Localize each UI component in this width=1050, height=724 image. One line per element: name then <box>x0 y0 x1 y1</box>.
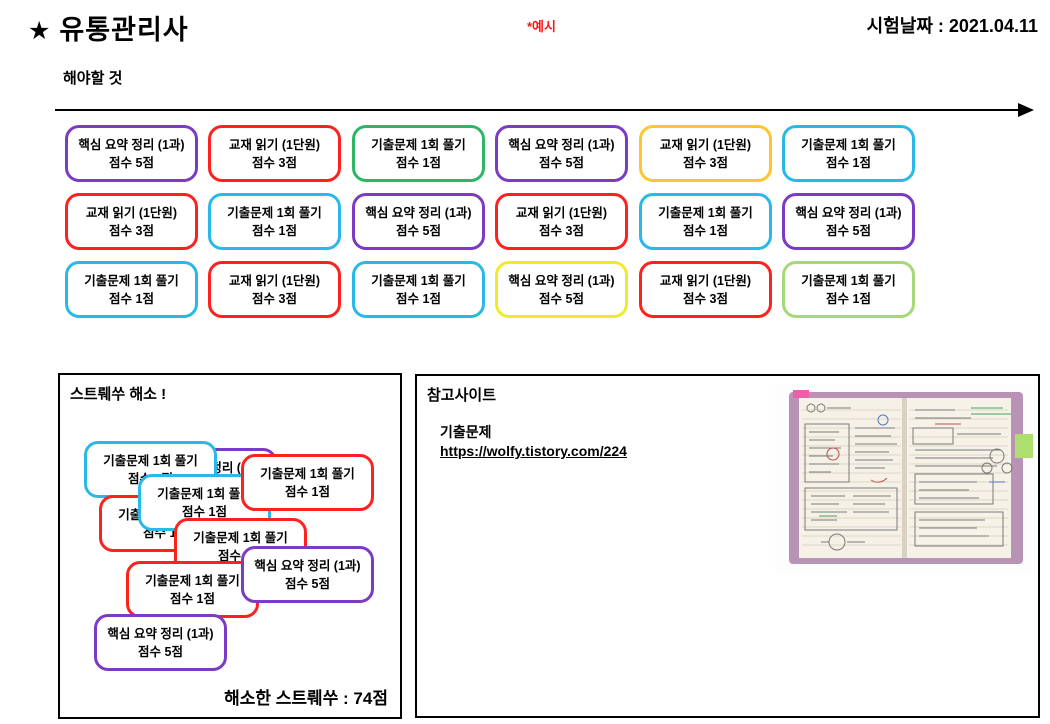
todo-card[interactable]: 기출문제 1회 풀기점수 1점 <box>208 193 341 250</box>
todo-card[interactable]: 핵심 요약 정리 (1과)점수 5점 <box>495 261 628 318</box>
todo-section-label: 해야할 것 <box>63 67 122 88</box>
todo-card[interactable]: 기출문제 1회 풀기점수 1점 <box>782 261 915 318</box>
todo-card-score: 점수 3점 <box>683 154 728 172</box>
todo-card[interactable]: 기출문제 1회 풀기점수 1점 <box>352 261 485 318</box>
page-title-text: 유통관리사 <box>59 15 188 45</box>
todo-card[interactable]: 핵심 요약 정리 (1과)점수 5점 <box>352 193 485 250</box>
todo-card-title: 기출문제 1회 풀기 <box>371 136 465 154</box>
todo-card-score: 점수 1점 <box>396 154 441 172</box>
todo-card-title: 교재 읽기 (1단원) <box>516 204 607 222</box>
timeline-arrow-head <box>1018 103 1034 117</box>
todo-card-title: 핵심 요약 정리 (1과) <box>78 136 184 154</box>
todo-card-score: 점수 1점 <box>826 154 871 172</box>
todo-card-score: 점수 3점 <box>539 222 584 240</box>
todo-card-title: 기출문제 1회 풀기 <box>84 272 178 290</box>
page-title: ★유통관리사 <box>28 8 189 47</box>
exam-date: 시험날짜 : 2021.04.11 <box>867 12 1038 38</box>
stress-card-score: 점수 1점 <box>170 590 215 608</box>
todo-card[interactable]: 기출문제 1회 풀기점수 1점 <box>639 193 772 250</box>
todo-card-score: 점수 3점 <box>252 290 297 308</box>
todo-card[interactable]: 핵심 요약 정리 (1과)점수 5점 <box>782 193 915 250</box>
todo-card-title: 기출문제 1회 풀기 <box>801 272 895 290</box>
todo-card-title: 기출문제 1회 풀기 <box>371 272 465 290</box>
stress-relief-box: 스트뤠쑤 해소 ! 핵심 요약 정리 (1과)점수 5점 기출문제 1회 풀기점… <box>58 373 402 719</box>
canvas: ★유통관리사 *예시 시험날짜 : 2021.04.11 해야할 것 핵심 요약… <box>0 0 1050 724</box>
stress-box-title: 스트뤠쑤 해소 ! <box>70 383 166 404</box>
todo-card-score: 점수 1점 <box>252 222 297 240</box>
todo-card-title: 기출문제 1회 풀기 <box>658 204 752 222</box>
stress-card-title: 기출문제 1회 풀기 <box>157 485 251 503</box>
reference-link-url[interactable]: https://wolfy.tistory.com/224 <box>440 443 627 459</box>
stress-card-title: 핵심 요약 정리 (1과) <box>254 557 360 575</box>
todo-card-score: 점수 3점 <box>252 154 297 172</box>
todo-card-score: 점수 1점 <box>826 290 871 308</box>
stress-card-title: 기출문제 1회 풀기 <box>260 465 354 483</box>
stress-card-title: 기출문제 1회 풀기 <box>193 529 287 547</box>
todo-card[interactable]: 핵심 요약 정리 (1과)점수 5점 <box>65 125 198 182</box>
star-icon: ★ <box>28 17 51 45</box>
todo-card[interactable]: 교재 읽기 (1단원)점수 3점 <box>639 261 772 318</box>
todo-card[interactable]: 기출문제 1회 풀기점수 1점 <box>782 125 915 182</box>
reference-box-title: 참고사이트 <box>427 384 496 405</box>
todo-card-title: 교재 읽기 (1단원) <box>229 136 320 154</box>
stress-card-title: 기출문제 1회 풀기 <box>145 572 239 590</box>
todo-card-score: 점수 5점 <box>109 154 154 172</box>
todo-card-title: 핵심 요약 정리 (1과) <box>365 204 471 222</box>
stress-card[interactable]: 핵심 요약 정리 (1과)점수 5점 <box>94 614 227 671</box>
todo-card[interactable]: 교재 읽기 (1단원)점수 3점 <box>208 125 341 182</box>
example-note: *예시 <box>527 16 556 35</box>
todo-card-score: 점수 5점 <box>826 222 871 240</box>
todo-card-score: 점수 1점 <box>683 222 728 240</box>
todo-card-title: 교재 읽기 (1단원) <box>660 136 751 154</box>
todo-card-title: 기출문제 1회 풀기 <box>227 204 321 222</box>
todo-card-title: 기출문제 1회 풀기 <box>801 136 895 154</box>
todo-card[interactable]: 교재 읽기 (1단원)점수 3점 <box>65 193 198 250</box>
reference-link-label: 기출문제 <box>440 422 492 442</box>
todo-card[interactable]: 교재 읽기 (1단원)점수 3점 <box>639 125 772 182</box>
todo-card[interactable]: 기출문제 1회 풀기점수 1점 <box>65 261 198 318</box>
todo-card-title: 교재 읽기 (1단원) <box>86 204 177 222</box>
stress-card-title: 핵심 요약 정리 (1과) <box>107 625 213 643</box>
stress-card[interactable]: 기출문제 1회 풀기점수 1점 <box>241 454 374 511</box>
todo-card-score: 점수 1점 <box>109 290 154 308</box>
stress-card-score: 점수 5점 <box>285 575 330 593</box>
todo-card-score: 점수 1점 <box>396 290 441 308</box>
todo-card-title: 교재 읽기 (1단원) <box>229 272 320 290</box>
todo-card-score: 점수 5점 <box>396 222 441 240</box>
todo-card-title: 핵심 요약 정리 (1과) <box>508 136 614 154</box>
reference-box: 참고사이트 기출문제 https://wolfy.tistory.com/224 <box>415 374 1040 718</box>
todo-card-title: 교재 읽기 (1단원) <box>660 272 751 290</box>
stress-card-title: 기출문제 1회 풀기 <box>103 452 197 470</box>
todo-card[interactable]: 교재 읽기 (1단원)점수 3점 <box>495 193 628 250</box>
todo-card-score: 점수 3점 <box>109 222 154 240</box>
notebook-photo <box>775 384 1037 574</box>
stress-card[interactable]: 기출문제 1회 풀기점수 1점 <box>126 561 259 618</box>
stress-card-score: 점수 5점 <box>138 643 183 661</box>
todo-card-title: 핵심 요약 정리 (1과) <box>508 272 614 290</box>
timeline-arrow <box>55 109 1020 111</box>
todo-card-score: 점수 3점 <box>683 290 728 308</box>
todo-card-score: 점수 5점 <box>539 290 584 308</box>
todo-card[interactable]: 기출문제 1회 풀기점수 1점 <box>352 125 485 182</box>
todo-card[interactable]: 교재 읽기 (1단원)점수 3점 <box>208 261 341 318</box>
todo-card-score: 점수 5점 <box>539 154 584 172</box>
stress-total: 해소한 스트뤠쑤 : 74점 <box>224 684 388 709</box>
todo-card-title: 핵심 요약 정리 (1과) <box>795 204 901 222</box>
stress-card[interactable]: 핵심 요약 정리 (1과)점수 5점 <box>241 546 374 603</box>
stress-card-score: 점수 1점 <box>285 483 330 501</box>
todo-card[interactable]: 핵심 요약 정리 (1과)점수 5점 <box>495 125 628 182</box>
